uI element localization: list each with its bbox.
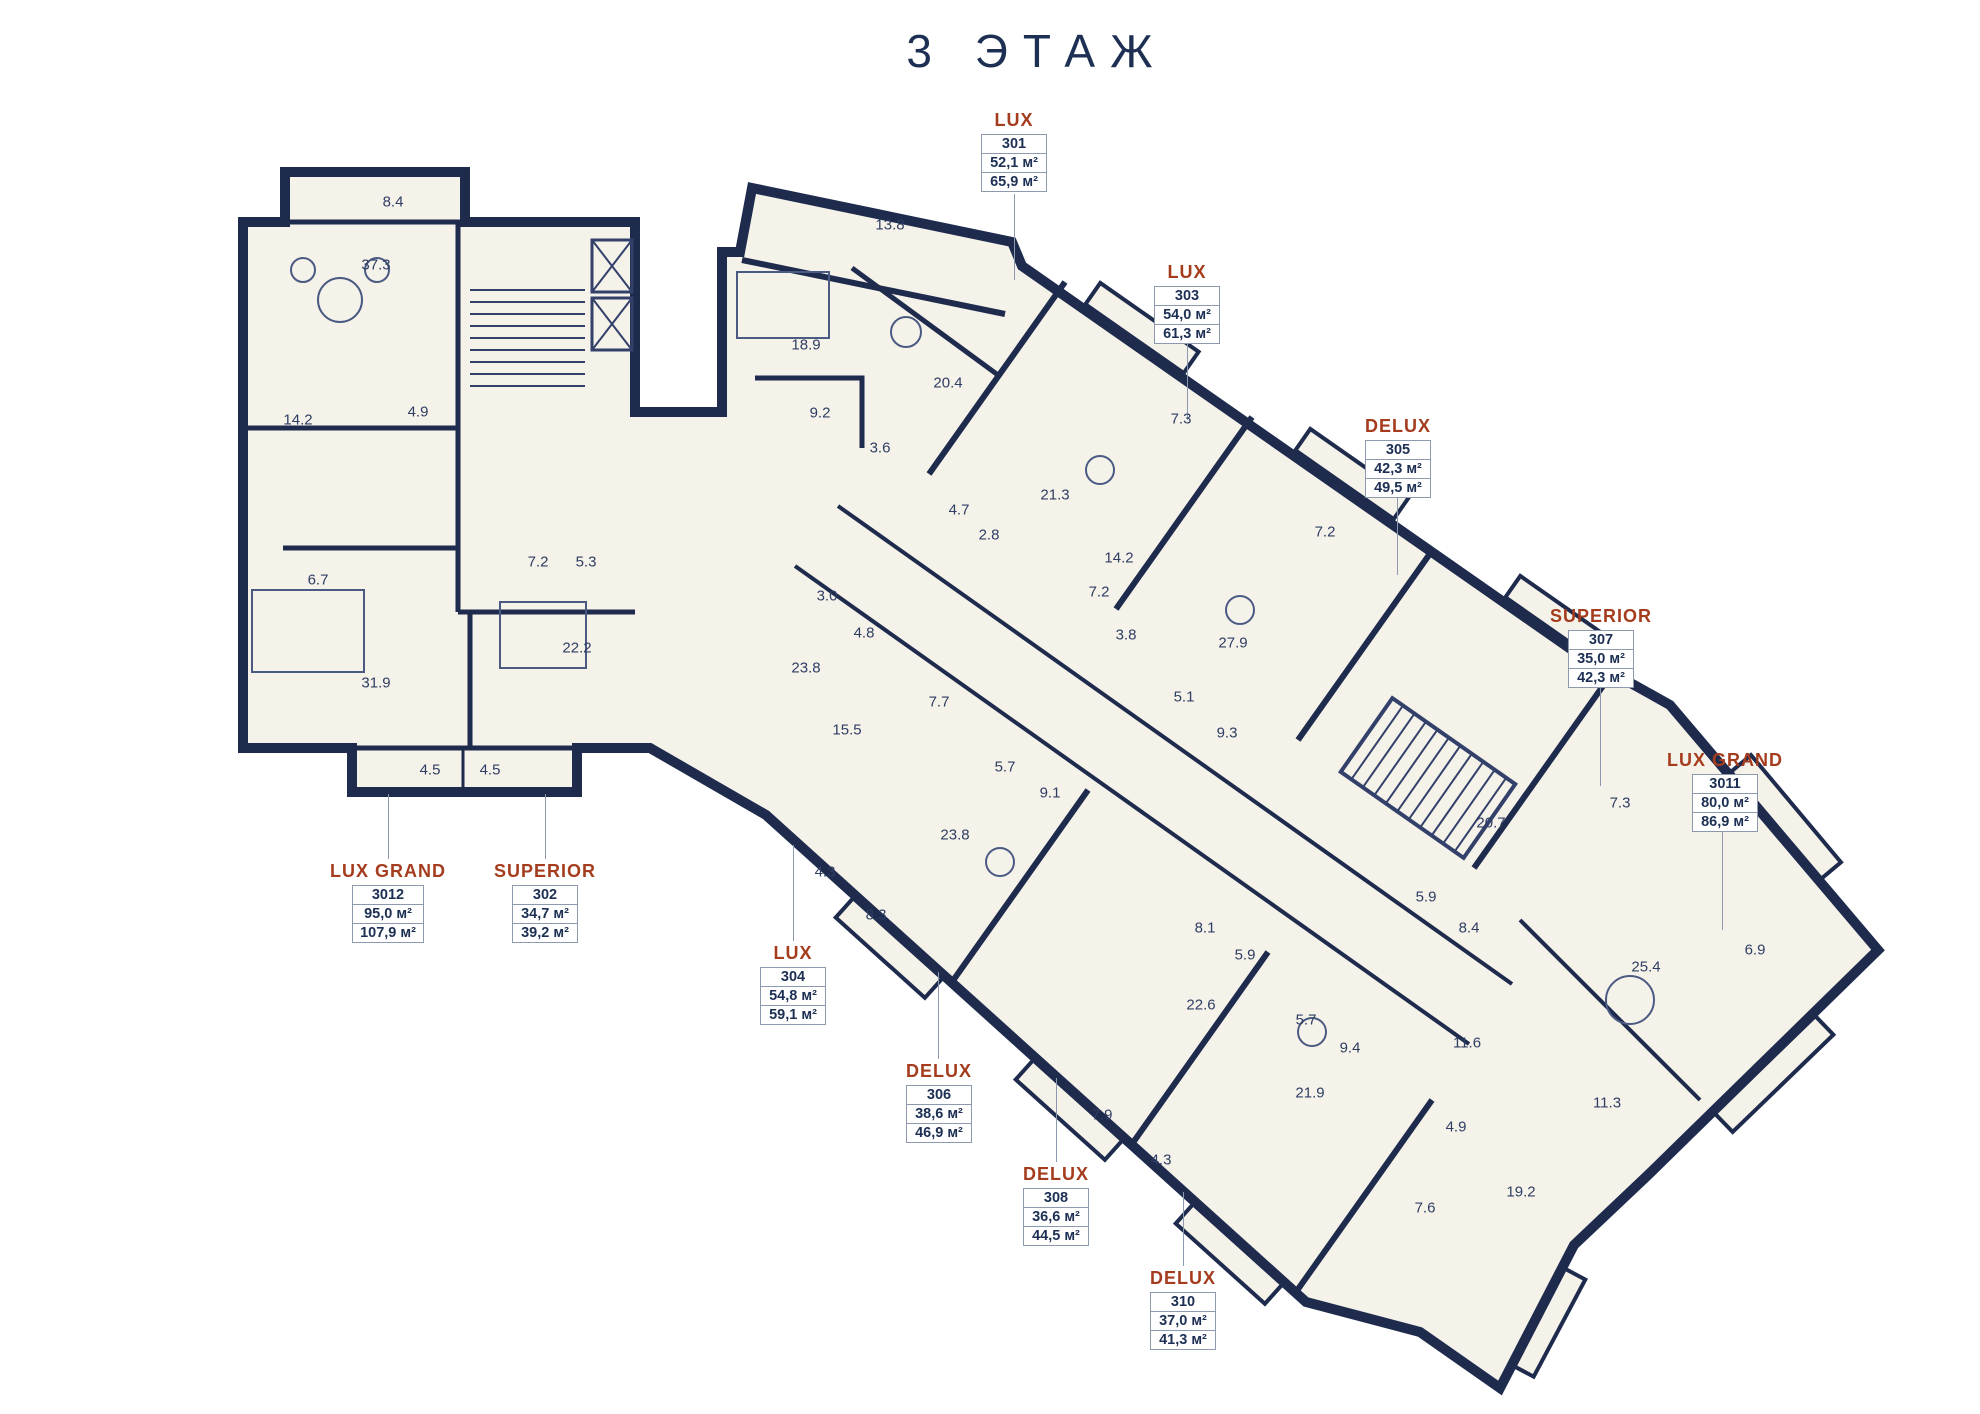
unit-info-box: 30454,8 м²59,1 м²	[760, 967, 826, 1025]
room-area-label: 6.9	[1745, 942, 1766, 959]
unit-label-306: DELUX30638,6 м²46,9 м²	[906, 1061, 972, 1143]
unit-area-total: 59,1 м²	[761, 1005, 825, 1024]
room-area-label: 22.6	[1186, 997, 1215, 1014]
unit-area-living: 80,0 м²	[1693, 793, 1757, 812]
unit-type: LUX	[1154, 262, 1220, 283]
unit-area-total: 65,9 м²	[982, 172, 1046, 191]
room-area-label: 3.6	[870, 440, 891, 457]
unit-area-living: 38,6 м²	[907, 1104, 971, 1123]
unit-number: 304	[761, 968, 825, 986]
room-area-label: 5.7	[1296, 1012, 1317, 1029]
room-area-label: 11.6	[1453, 1035, 1481, 1052]
leader-line	[545, 794, 546, 859]
room-area-label: 4.9	[1446, 1119, 1467, 1136]
room-area-label: 5.1	[1174, 689, 1195, 706]
room-area-label: 2.8	[979, 527, 1000, 544]
room-area-label: 13.8	[875, 217, 904, 234]
unit-number: 303	[1155, 287, 1219, 305]
unit-area-total: 49,5 м²	[1366, 478, 1430, 497]
room-area-label: 14.2	[1104, 550, 1133, 567]
unit-info-box: 301295,0 м²107,9 м²	[352, 885, 424, 943]
unit-area-total: 46,9 м²	[907, 1123, 971, 1142]
unit-area-total: 42,3 м²	[1569, 668, 1633, 687]
room-area-label: 4.3	[1151, 1152, 1172, 1169]
room-area-label: 21.3	[1040, 487, 1069, 504]
unit-area-living: 37,0 м²	[1151, 1311, 1215, 1330]
unit-area-total: 41,3 м²	[1151, 1330, 1215, 1349]
unit-number: 310	[1151, 1293, 1215, 1311]
unit-info-box: 30152,1 м²65,9 м²	[981, 134, 1047, 192]
unit-label-301: LUX30152,1 м²65,9 м²	[981, 110, 1047, 192]
unit-number: 301	[982, 135, 1046, 153]
unit-type: LUX	[981, 110, 1047, 131]
room-area-label: 4.5	[480, 762, 501, 779]
unit-number: 305	[1366, 441, 1430, 459]
unit-number: 3012	[353, 886, 423, 904]
leader-line	[938, 972, 939, 1059]
room-area-label: 8.1	[1195, 920, 1216, 937]
room-area-label: 4.3	[815, 864, 836, 881]
room-area-label: 37.3	[361, 257, 390, 274]
room-area-label: 7.2	[1089, 584, 1110, 601]
room-area-label: 20.7	[1476, 815, 1505, 832]
unit-label-308: DELUX30836,6 м²44,5 м²	[1023, 1164, 1089, 1246]
unit-label-3012: LUX GRAND301295,0 м²107,9 м²	[330, 861, 446, 943]
unit-type: LUX GRAND	[1667, 750, 1783, 771]
page-title: 3 ЭТАЖ	[906, 24, 1167, 78]
unit-area-total: 86,9 м²	[1693, 812, 1757, 831]
room-area-label: 9.1	[1040, 785, 1061, 802]
unit-area-living: 34,7 м²	[513, 904, 577, 923]
unit-type: SUPERIOR	[494, 861, 596, 882]
room-area-label: 31.9	[361, 675, 390, 692]
unit-type: DELUX	[1023, 1164, 1089, 1185]
unit-area-total: 61,3 м²	[1155, 324, 1219, 343]
room-area-label: 5.3	[576, 554, 597, 571]
room-area-label: 23.8	[940, 827, 969, 844]
leader-line	[1056, 1078, 1057, 1162]
leader-line	[1722, 828, 1723, 930]
unit-type: SUPERIOR	[1550, 606, 1652, 627]
unit-area-total: 39,2 м²	[513, 923, 577, 942]
leader-line	[1014, 194, 1015, 280]
unit-number: 306	[907, 1086, 971, 1104]
room-area-label: 7.3	[1610, 795, 1631, 812]
unit-type: DELUX	[1150, 1268, 1216, 1289]
room-area-label: 7.6	[1415, 1200, 1436, 1217]
room-area-label: 21.9	[1295, 1085, 1324, 1102]
unit-number: 308	[1024, 1189, 1088, 1207]
leader-line	[1600, 684, 1601, 786]
unit-label-302: SUPERIOR30234,7 м²39,2 м²	[494, 861, 596, 943]
unit-area-living: 95,0 м²	[353, 904, 423, 923]
room-area-label: 23.8	[791, 660, 820, 677]
unit-type: LUX GRAND	[330, 861, 446, 882]
unit-info-box: 30234,7 м²39,2 м²	[512, 885, 578, 943]
unit-label-305: DELUX30542,3 м²49,5 м²	[1365, 416, 1431, 498]
room-area-label: 3.8	[1116, 627, 1137, 644]
unit-info-box: 30638,6 м²46,9 м²	[906, 1085, 972, 1143]
room-area-label: 8.4	[1459, 920, 1480, 937]
room-area-label: 9.4	[1340, 1040, 1361, 1057]
room-area-label: 11.3	[1593, 1095, 1621, 1112]
unit-label-307: SUPERIOR30735,0 м²42,3 м²	[1550, 606, 1652, 688]
room-area-label: 7.2	[528, 554, 549, 571]
unit-area-living: 54,0 м²	[1155, 305, 1219, 324]
leader-line	[793, 845, 794, 941]
unit-number: 302	[513, 886, 577, 904]
unit-type: DELUX	[906, 1061, 972, 1082]
room-area-label: 25.4	[1631, 959, 1660, 976]
room-area-label: 27.9	[1218, 635, 1247, 652]
unit-label-304: LUX30454,8 м²59,1 м²	[760, 943, 826, 1025]
room-area-label: 5.9	[1235, 947, 1256, 964]
room-area-label: 4.5	[420, 762, 441, 779]
room-area-label: 4.7	[949, 502, 970, 519]
room-area-label: 22.2	[562, 640, 591, 657]
floor-plan-page: 3 ЭТАЖ	[0, 0, 1980, 1414]
room-area-label: 7.3	[1171, 411, 1192, 428]
room-area-label: 20.4	[933, 375, 962, 392]
unit-number: 3011	[1693, 775, 1757, 793]
room-area-label: 3.0	[817, 588, 838, 605]
unit-info-box: 30542,3 м²49,5 м²	[1365, 440, 1431, 498]
leader-line	[1187, 343, 1188, 420]
unit-type: LUX	[760, 943, 826, 964]
unit-info-box: 30836,6 м²44,5 м²	[1023, 1188, 1089, 1246]
room-area-label: 18.9	[791, 337, 820, 354]
unit-area-living: 52,1 м²	[982, 153, 1046, 172]
room-area-label: 8.3	[866, 907, 887, 924]
room-area-label: 8.4	[383, 194, 404, 211]
unit-info-box: 301180,0 м²86,9 м²	[1692, 774, 1758, 832]
leader-line	[1397, 492, 1398, 575]
unit-info-box: 30354,0 м²61,3 м²	[1154, 286, 1220, 344]
unit-number: 307	[1569, 631, 1633, 649]
room-area-label: 5.7	[995, 759, 1016, 776]
room-area-label: 15.5	[832, 722, 861, 739]
room-area-label: 7.2	[1315, 524, 1336, 541]
floor-plan-drawing	[0, 0, 1980, 1414]
unit-area-living: 42,3 м²	[1366, 459, 1430, 478]
unit-type: DELUX	[1365, 416, 1431, 437]
room-area-label: 4.9	[408, 404, 429, 421]
room-area-label: 14.2	[283, 412, 312, 429]
unit-label-310: DELUX31037,0 м²41,3 м²	[1150, 1268, 1216, 1350]
room-area-label: 6.7	[308, 572, 329, 589]
unit-info-box: 30735,0 м²42,3 м²	[1568, 630, 1634, 688]
room-area-label: 5.9	[1416, 889, 1437, 906]
room-area-label: 9.2	[810, 405, 831, 422]
room-area-label: 7.9	[1092, 1107, 1113, 1124]
room-area-label: 4.8	[854, 625, 875, 642]
room-area-label: 9.3	[1217, 725, 1238, 742]
unit-info-box: 31037,0 м²41,3 м²	[1150, 1292, 1216, 1350]
unit-area-living: 54,8 м²	[761, 986, 825, 1005]
room-area-label: 7.7	[929, 694, 950, 711]
leader-line	[1183, 1192, 1184, 1266]
unit-area-total: 107,9 м²	[353, 923, 423, 942]
unit-area-living: 36,6 м²	[1024, 1207, 1088, 1226]
unit-area-total: 44,5 м²	[1024, 1226, 1088, 1245]
unit-area-living: 35,0 м²	[1569, 649, 1633, 668]
leader-line	[388, 794, 389, 859]
unit-label-3011: LUX GRAND301180,0 м²86,9 м²	[1667, 750, 1783, 832]
room-area-label: 19.2	[1506, 1184, 1535, 1201]
unit-label-303: LUX30354,0 м²61,3 м²	[1154, 262, 1220, 344]
